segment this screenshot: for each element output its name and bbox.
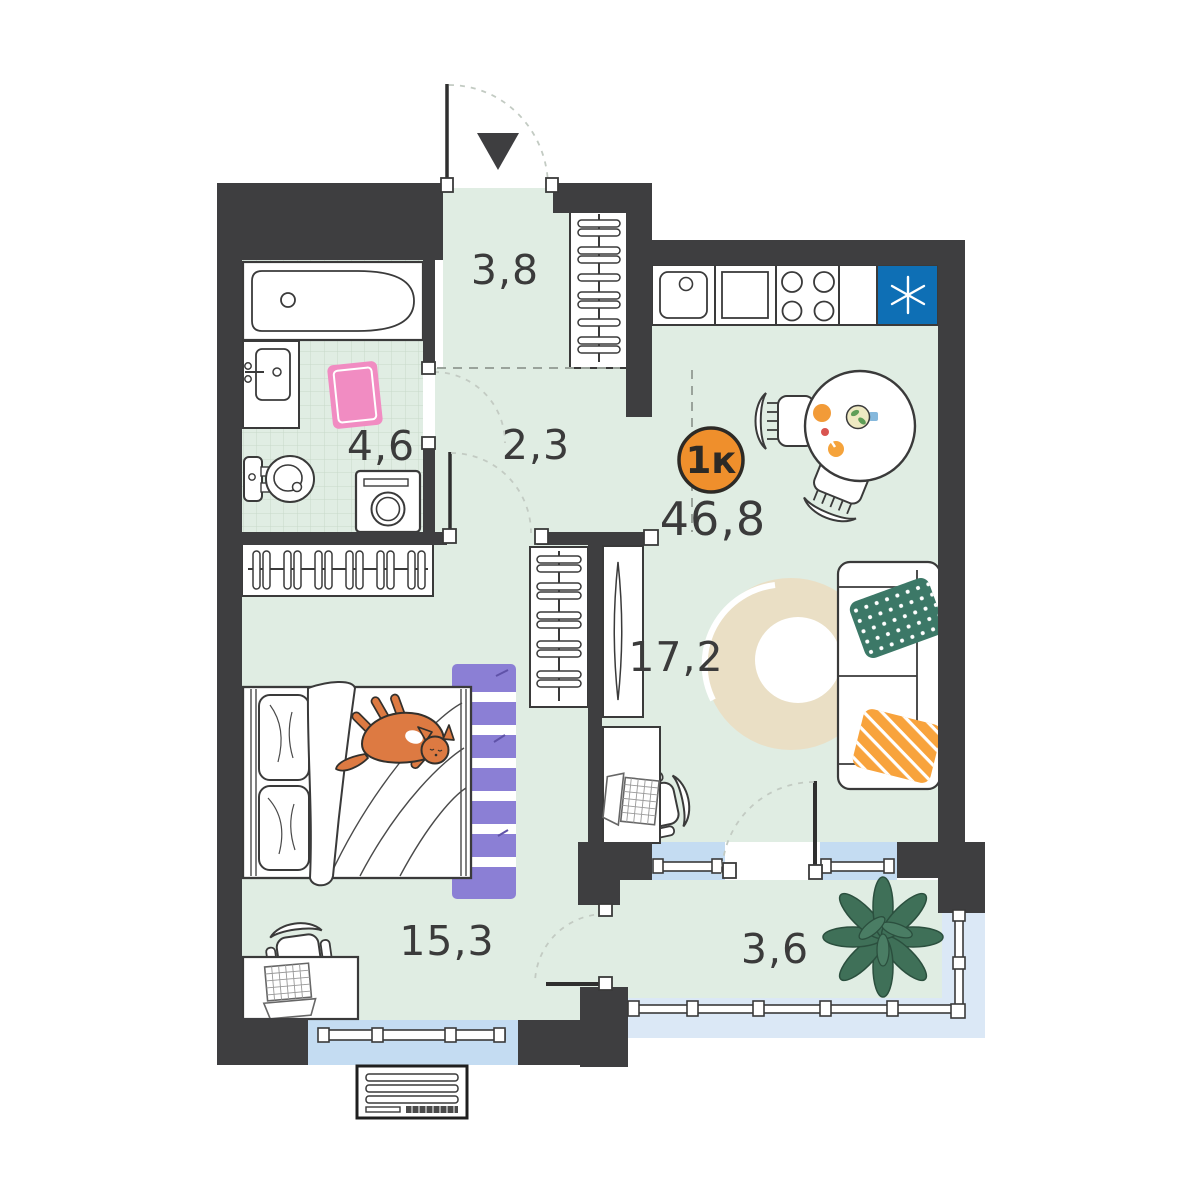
area-label-balcony: 3,6	[741, 925, 809, 973]
balcony-glazing-bottom-glass	[628, 998, 985, 1038]
mirror-cabinet	[603, 546, 643, 717]
bathroom-sink	[243, 341, 299, 428]
laptop	[602, 772, 659, 829]
kitchen-counter	[652, 265, 938, 325]
kitchen-cabinet-unit	[715, 265, 776, 325]
entry-wardrobe	[570, 210, 627, 368]
bedroom-window-glass	[308, 1020, 518, 1065]
bed	[243, 682, 471, 885]
total-area-label: 46,8	[660, 492, 766, 546]
area-label-living-kitchen: 17,2	[628, 633, 723, 681]
washing-machine	[356, 471, 420, 532]
toilet	[244, 456, 314, 502]
sofa	[838, 562, 947, 789]
bath-mat	[327, 361, 383, 430]
stove-unit	[776, 265, 839, 325]
entrance-arrow-icon	[477, 133, 519, 170]
area-label-bathroom: 4,6	[347, 422, 415, 470]
fridge-unit	[877, 265, 938, 325]
bedroom-laptop	[261, 963, 317, 1019]
area-label-entry: 3,8	[471, 246, 539, 294]
unit-type-badge: 1к	[679, 428, 743, 492]
floor-plan-canvas: 3,8 4,6 2,3 17,2 15,3 3,6 1к 46,8	[0, 0, 1200, 1200]
bedroom-window	[318, 1028, 505, 1042]
counter-unit	[839, 265, 877, 325]
floor-plan-svg: 3,8 4,6 2,3 17,2 15,3 3,6 1к 46,8	[0, 0, 1200, 1200]
bedroom-wardrobe	[530, 547, 588, 707]
ac-unit	[357, 1066, 467, 1118]
bathtub	[243, 262, 423, 340]
plant	[823, 877, 943, 997]
unit-type-badge-label: 1к	[686, 439, 737, 482]
area-label-bedroom: 15,3	[399, 917, 494, 965]
kitchen-sink-unit	[652, 265, 715, 325]
orange-fruit	[813, 404, 831, 422]
entrance-door	[441, 84, 558, 192]
area-label-corridor: 2,3	[502, 421, 570, 469]
clothes-rack	[242, 543, 433, 596]
